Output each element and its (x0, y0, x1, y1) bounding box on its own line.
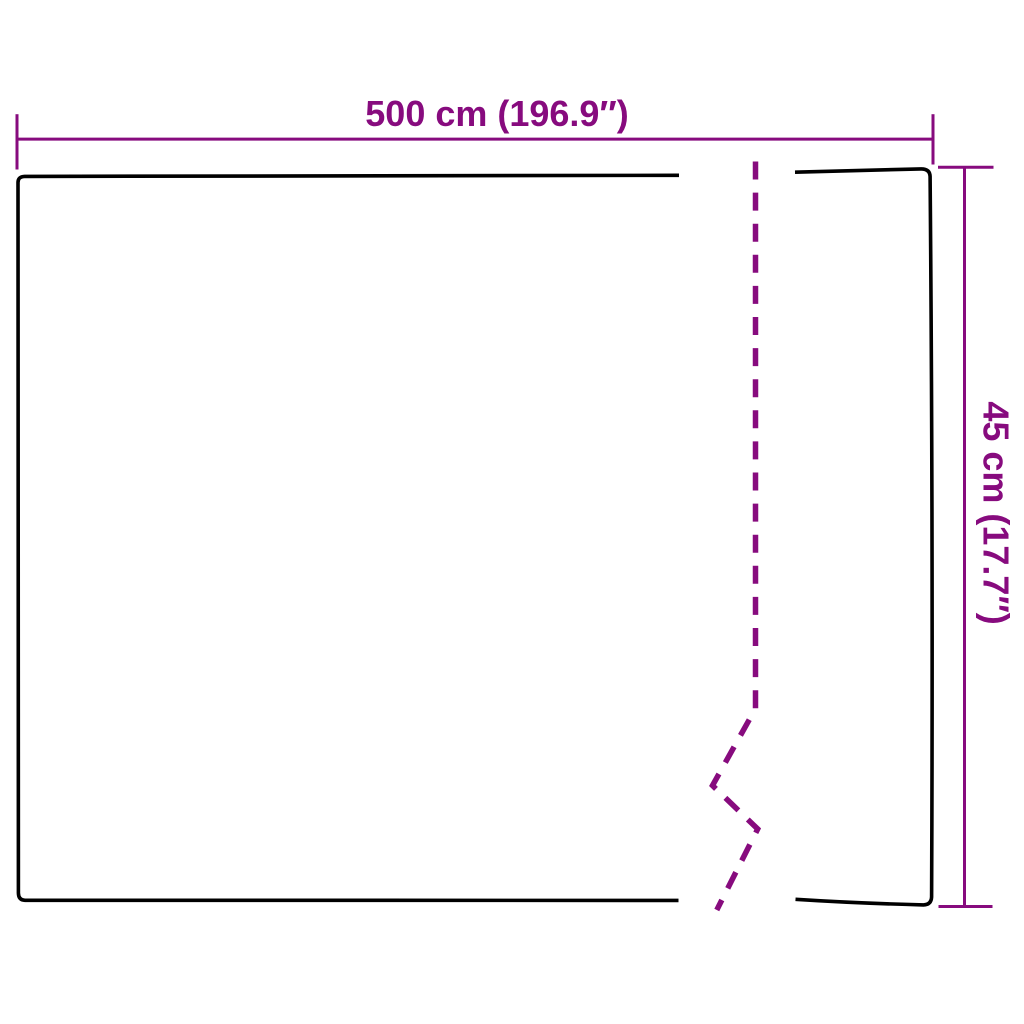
svg-text:500 cm (196.9″): 500 cm (196.9″) (365, 93, 628, 134)
svg-text:45 cm (17.7″): 45 cm (17.7″) (976, 401, 1017, 624)
